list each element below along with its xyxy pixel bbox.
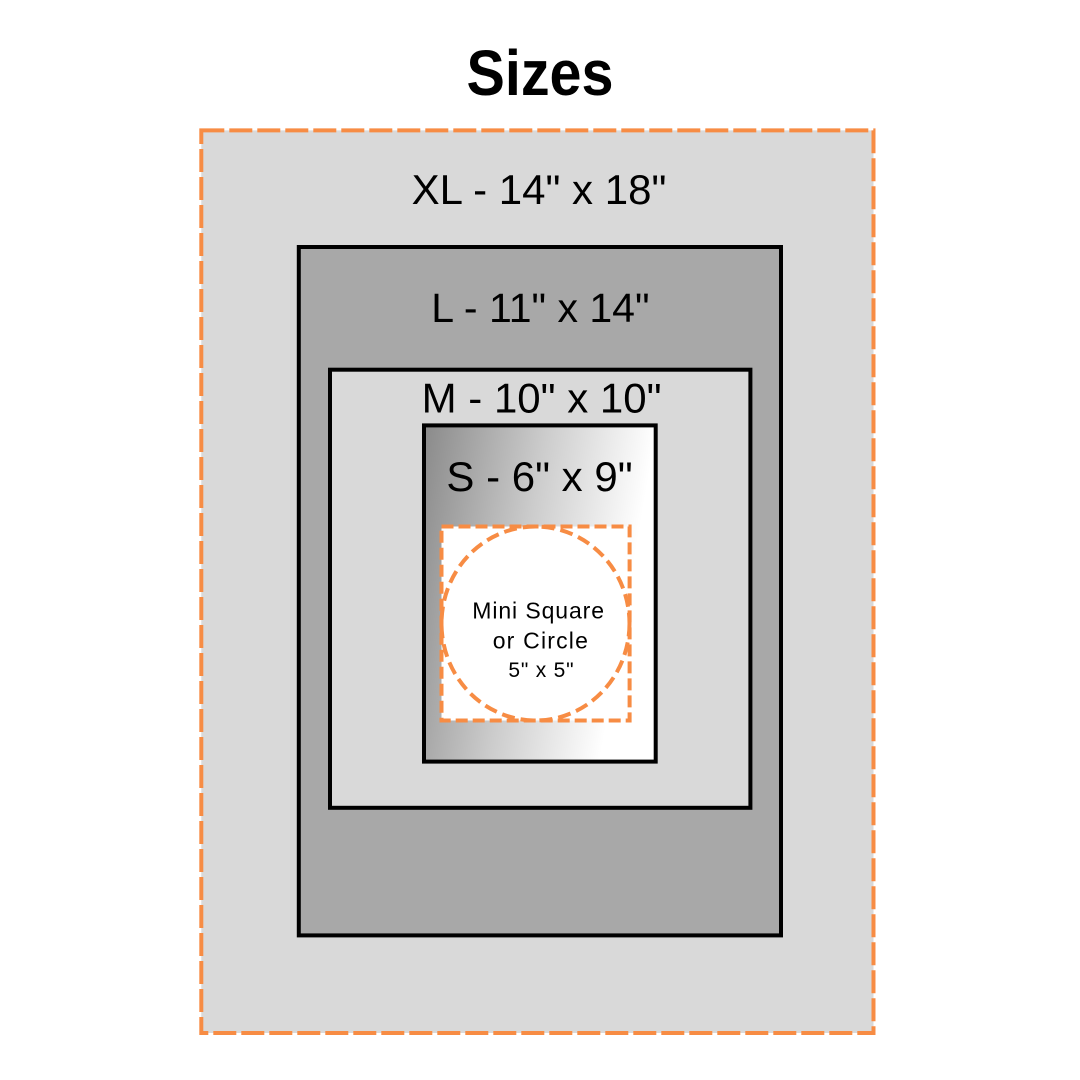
svg-text:Sizes: Sizes [467, 37, 614, 109]
svg-text:5" x 5": 5" x 5" [508, 659, 574, 682]
svg-text:M - 10" x 10": M - 10" x 10" [422, 375, 662, 422]
svg-text:L - 11" x 14": L - 11" x 14" [431, 285, 649, 331]
svg-text:XL - 14" x 18": XL - 14" x 18" [412, 166, 667, 213]
svg-text:or Circle: or Circle [493, 628, 589, 654]
svg-text:Mini Square: Mini Square [472, 597, 605, 623]
svg-text:S - 6" x 9": S - 6" x 9" [446, 453, 632, 500]
